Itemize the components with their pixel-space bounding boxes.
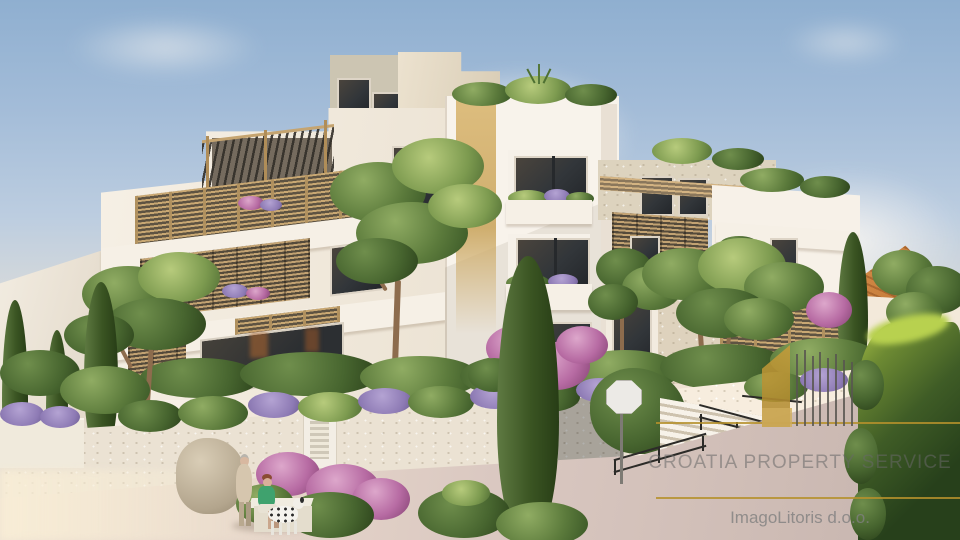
railing-post <box>614 460 616 475</box>
lavender-bush <box>800 368 848 392</box>
pergola-post <box>206 136 209 188</box>
tree-canopy <box>428 184 502 228</box>
rooftop-plants <box>452 82 512 106</box>
rooftop-plants <box>712 148 764 170</box>
dalmatian-dog-leg <box>271 521 274 535</box>
dalmatian-dog-leg <box>294 521 297 534</box>
logo-bar-icon <box>796 354 798 426</box>
pergola-post <box>324 120 327 176</box>
front-hedge-edge <box>848 360 884 410</box>
pine-canopy <box>138 252 220 302</box>
watermark-line-top <box>656 422 960 424</box>
rooftop-plants <box>740 168 804 192</box>
rooftop-plants <box>565 84 617 106</box>
sign-pole <box>620 408 623 484</box>
person-standing-leg <box>246 502 251 526</box>
pergola-post <box>264 130 267 182</box>
dalmatian-dog-leg <box>287 522 290 535</box>
logo-bar-icon <box>835 354 837 426</box>
watermark-studio-credit: ImagoLitoris d.o.o. <box>640 508 960 528</box>
watermark-company-name: CROATIA PROPERTY SERVICE <box>640 452 960 474</box>
shrub <box>442 480 490 506</box>
logo-bar-icon <box>851 362 853 426</box>
dalmatian-dog-ear <box>300 497 304 503</box>
logo-bar-icon <box>812 356 814 426</box>
logo-bar-icon <box>827 358 829 426</box>
person-standing-leg <box>239 502 244 526</box>
garden-shrub <box>178 396 248 430</box>
tree-canopy <box>724 298 794 340</box>
cloud <box>760 10 930 75</box>
interior-light-glow <box>250 332 268 358</box>
dalmatian-dog-leg <box>279 522 282 535</box>
traffic-sign <box>606 380 642 414</box>
rooftop-plants <box>652 138 712 164</box>
logo-base-icon <box>762 408 792 427</box>
palm-frond <box>538 64 540 84</box>
architectural-render-scene: CROATIA PROPERTY SERVICE ImagoLitoris d.… <box>0 0 960 540</box>
pink-flower-bush <box>556 326 608 364</box>
planter-box <box>506 200 592 224</box>
pink-flower-bush <box>806 292 852 328</box>
garden-shrub <box>408 386 474 418</box>
interior-light-glow <box>305 328 319 352</box>
logo-bar-icon <box>843 360 845 426</box>
lavender-bush <box>248 392 300 418</box>
garden-shrub <box>118 400 182 432</box>
watermark-line-bottom <box>656 497 960 499</box>
rooftop-plants <box>800 176 850 198</box>
cloud <box>30 5 300 90</box>
railing-post <box>702 436 704 451</box>
tree-canopy <box>588 284 638 320</box>
planter-flowers <box>246 287 270 300</box>
garden-shrub <box>298 392 362 422</box>
planter-flowers <box>222 284 248 298</box>
lavender-bush <box>40 406 80 428</box>
person-standing-body <box>236 464 252 504</box>
utility-cabinet-grille <box>310 421 329 459</box>
tree-canopy <box>336 238 418 284</box>
logo-bar-icon <box>804 350 806 426</box>
lavender-bush <box>358 388 412 414</box>
shrub <box>496 502 588 540</box>
lavender-bush <box>0 402 44 426</box>
base-hedge <box>240 352 380 396</box>
planter-flowers <box>260 199 282 211</box>
logo-bar-icon <box>819 352 821 426</box>
